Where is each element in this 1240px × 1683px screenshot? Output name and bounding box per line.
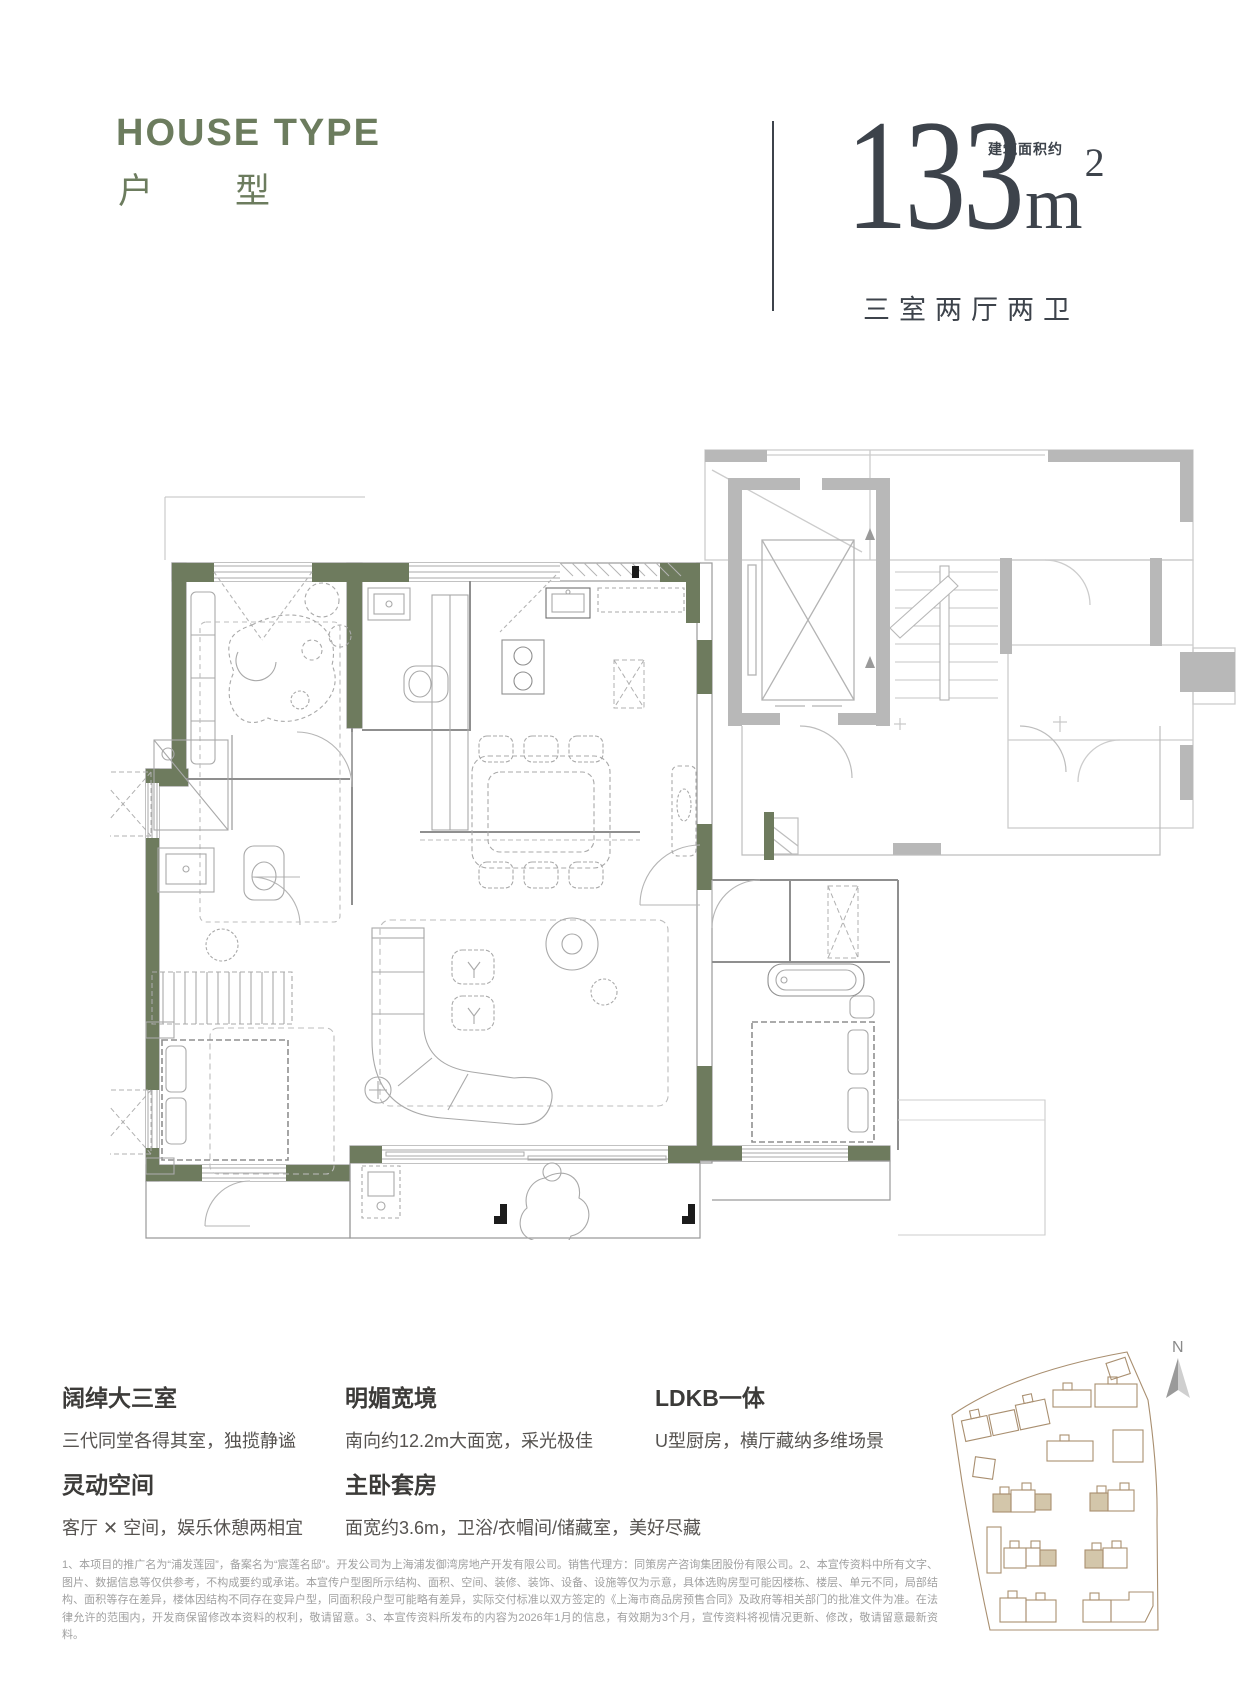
corridor: [742, 726, 1160, 855]
site-building: [1090, 1483, 1134, 1511]
page-title-cn-char: 户: [118, 163, 153, 214]
site-boundary: [952, 1352, 1158, 1630]
windows: [146, 497, 848, 1181]
feature-title: 阔绰大三室: [62, 1383, 345, 1413]
feature-item: 明媚宽境 南向约12.2m大面宽，采光极佳: [345, 1383, 655, 1454]
elevator-shaft: [748, 540, 854, 706]
compass: N: [1166, 1339, 1190, 1398]
feature-desc: 面宽约3.6m，卫浴/衣帽间/储藏室，美好尽藏: [345, 1515, 655, 1541]
compass-needle-light: [1178, 1358, 1190, 1398]
disclaimer-text: 1、本项目的推广名为“浦发莲园”，备案名为“宸莲名邸”。开发公司为上海浦发御湾房…: [62, 1557, 938, 1645]
feature-desc: 三代同堂各得其室，独揽静谧: [62, 1428, 345, 1454]
feature-item: 主卧套房 面宽约3.6m，卫浴/衣帽间/储藏室，美好尽藏: [345, 1470, 655, 1541]
feature-item: 阔绰大三室 三代同堂各得其室，独揽静谧: [62, 1383, 345, 1454]
core-walls: [705, 450, 1235, 855]
page-title-en: HOUSE TYPE: [116, 112, 381, 155]
site-building: [1004, 1541, 1056, 1568]
area-superscript: 2: [1085, 139, 1105, 186]
unit-walls: [146, 563, 890, 1181]
doors: [205, 572, 760, 1226]
site-building: [973, 1457, 996, 1480]
area-value: 133: [846, 96, 1022, 256]
compass-needle-dark: [1166, 1358, 1178, 1398]
area-unit: m: [1025, 162, 1083, 247]
feature-desc: 客厅 ✕ 空间，娱乐休憩两相宜: [62, 1515, 345, 1541]
floor-plan: [110, 430, 1240, 1240]
feature-title: 主卧套房: [345, 1470, 655, 1500]
feature-title: 明媚宽境: [345, 1383, 655, 1413]
header-divider: [772, 121, 774, 311]
house-type-brochure-page: { "header": { "title_en": "HOUSE TYPE", …: [0, 0, 1240, 1683]
unit-walls-green: [146, 563, 890, 1181]
page-title-cn-char: 型: [235, 163, 270, 214]
page-title-cn: 户 型: [118, 163, 270, 214]
site-building: [1085, 1541, 1127, 1568]
area-label: 建筑面积约: [988, 139, 1063, 159]
ac-platforms: [110, 660, 858, 1154]
area-figure: 133 m 2: [846, 96, 1103, 256]
compass-label: N: [1172, 1339, 1184, 1356]
site-building: [959, 1391, 1050, 1441]
site-building: [993, 1483, 1051, 1512]
stairs: [865, 528, 1067, 732]
feature-item: 灵动空间 客厅 ✕ 空间，娱乐休憩两相宜: [62, 1470, 345, 1541]
feature-grid: 阔绰大三室 三代同堂各得其室，独揽静谧 明媚宽境 南向约12.2m大面宽，采光极…: [62, 1383, 962, 1541]
site-building: [1083, 1592, 1153, 1622]
feature-title: 灵动空间: [62, 1470, 345, 1500]
interior-walls: [146, 575, 898, 1238]
feature-desc: 南向约12.2m大面宽，采光极佳: [345, 1428, 655, 1454]
room-layout-label: 三室两厅两卫: [863, 288, 1079, 327]
site-building: [1000, 1591, 1056, 1622]
site-building: [1047, 1435, 1093, 1461]
site-building: [1053, 1377, 1137, 1407]
site-building: [987, 1527, 1001, 1573]
site-building: [1113, 1430, 1143, 1462]
furniture: [146, 583, 1045, 1240]
